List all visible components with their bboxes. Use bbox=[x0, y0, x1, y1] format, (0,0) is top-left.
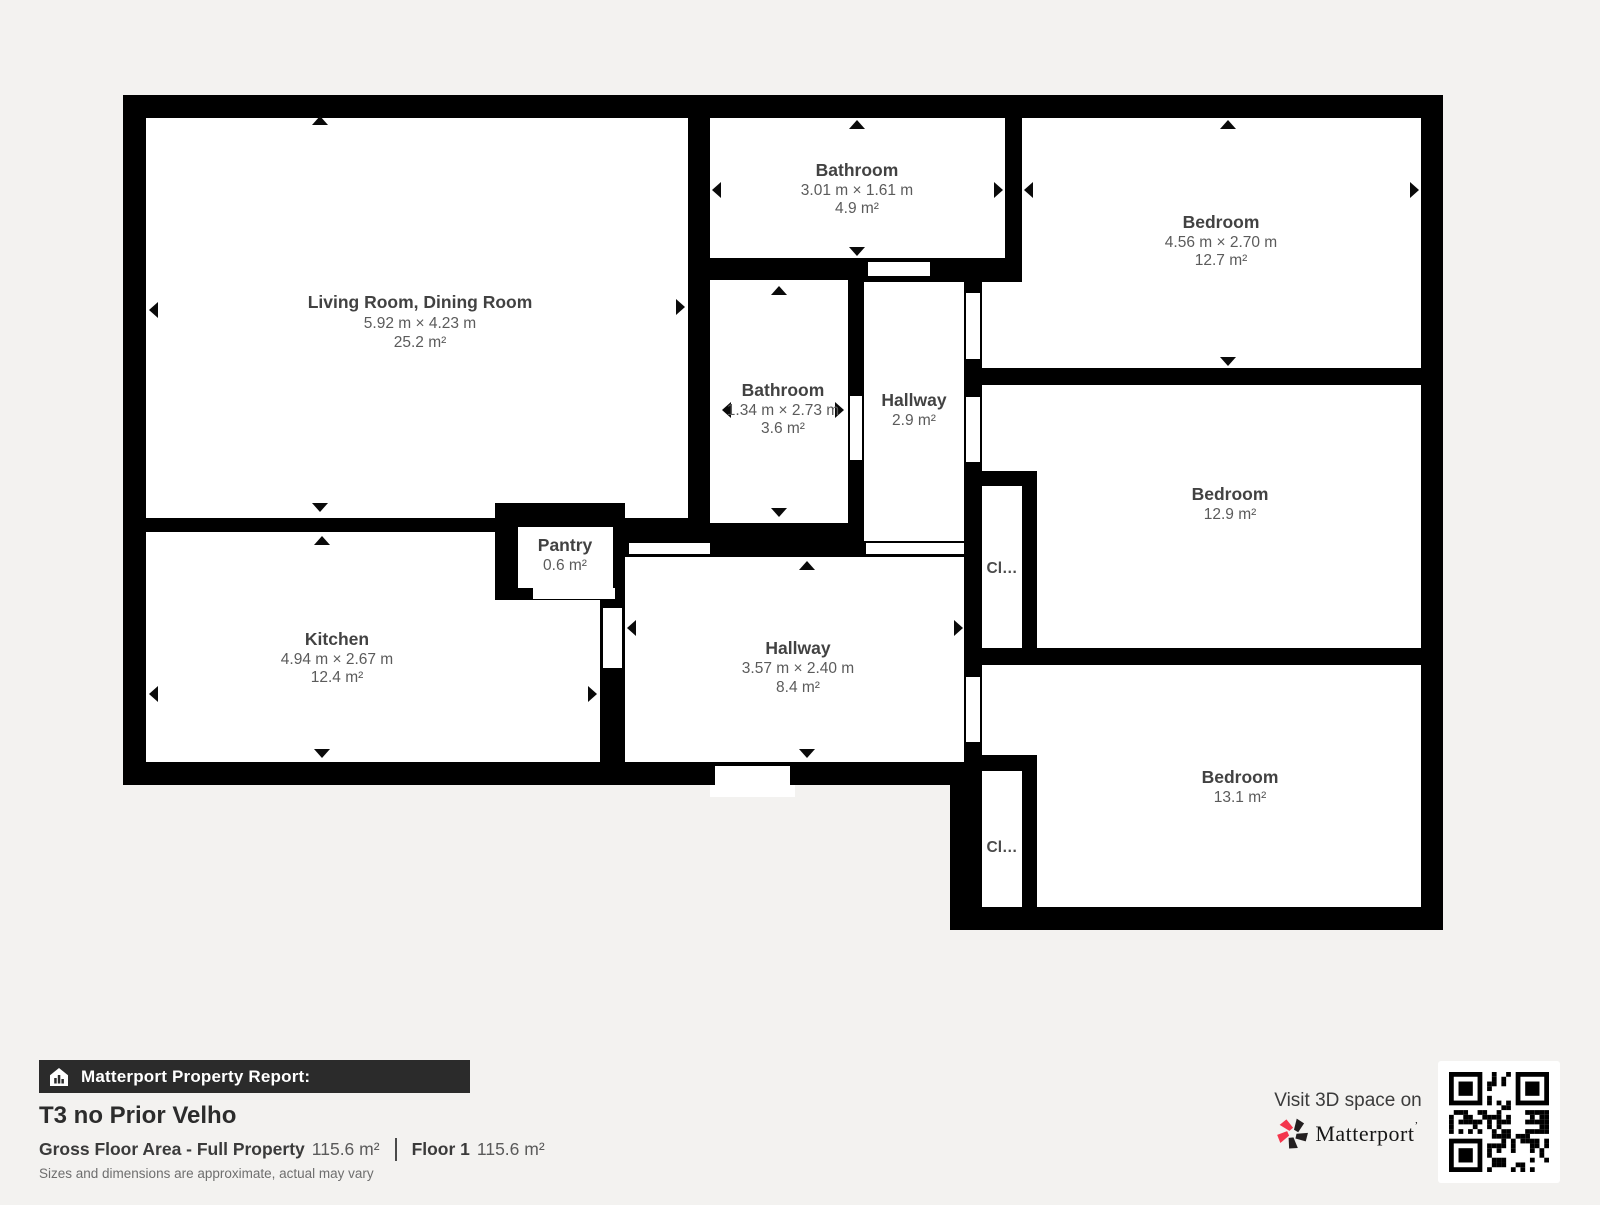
floor-label: Floor 1 bbox=[412, 1139, 470, 1160]
matterport-brand-row: Matterportʼ bbox=[1248, 1118, 1448, 1149]
room-area: 4.9 m² bbox=[835, 200, 879, 217]
room-dims: 4.94 m × 2.67 m bbox=[281, 651, 393, 668]
room-dims: 3.01 m × 1.61 m bbox=[801, 182, 913, 199]
floor-area-stats: Gross Floor Area - Full Property 115.6 m… bbox=[39, 1138, 545, 1161]
room-name: Bedroom bbox=[1192, 484, 1269, 504]
door-hallway-bottom bbox=[715, 766, 790, 785]
label-closet-upper: Cl… bbox=[987, 560, 1018, 577]
matterport-pinwheel-icon bbox=[1277, 1118, 1308, 1149]
room-dims: 1.34 m × 2.73 m bbox=[727, 402, 839, 419]
room-area: 3.6 m² bbox=[761, 420, 805, 437]
visit-3d-text: Visit 3D space on bbox=[1248, 1090, 1448, 1112]
door-pantry bbox=[533, 588, 615, 599]
room-dims: 4.56 m × 2.70 m bbox=[1165, 234, 1277, 251]
room-area: 25.2 m² bbox=[394, 334, 447, 351]
room-name: Bedroom bbox=[1202, 767, 1279, 787]
label-closet-lower: Cl… bbox=[987, 839, 1018, 856]
room-name: Hallway bbox=[765, 638, 830, 658]
door-bedroom-top-right bbox=[966, 293, 980, 359]
room-bedroom-middle-right bbox=[982, 385, 1421, 648]
room-area: 8.4 m² bbox=[776, 679, 820, 696]
property-title: T3 no Prior Velho bbox=[39, 1102, 236, 1130]
door-bedroom-middle-right bbox=[966, 397, 980, 462]
visit-3d-block: Visit 3D space on Matterportʼ bbox=[1248, 1090, 1448, 1149]
room-name: Bathroom bbox=[742, 380, 825, 400]
room-area: 0.6 m² bbox=[543, 557, 587, 574]
closet-upper-wall-right bbox=[1022, 471, 1037, 648]
report-bar-label: Matterport Property Report: bbox=[81, 1067, 310, 1087]
room-name: Kitchen bbox=[305, 629, 369, 649]
room-bedroom-top-right-nook bbox=[982, 282, 1022, 368]
stats-divider bbox=[395, 1138, 397, 1161]
room-dims: 3.57 m × 2.40 m bbox=[742, 660, 854, 677]
qr-code bbox=[1449, 1072, 1549, 1172]
room-name: Hallway bbox=[881, 390, 946, 410]
door-bathroom-top bbox=[868, 262, 930, 276]
door-bedroom-bottom-right bbox=[966, 677, 980, 742]
door-bathroom-middle bbox=[850, 396, 862, 460]
room-name: Living Room, Dining Room bbox=[308, 292, 533, 312]
room-name: Bedroom bbox=[1183, 212, 1260, 232]
floor-value: 115.6 m² bbox=[477, 1139, 545, 1160]
gross-area-value: 115.6 m² bbox=[312, 1139, 380, 1160]
room-area: 12.7 m² bbox=[1195, 252, 1248, 269]
passage-hallways bbox=[866, 543, 964, 554]
room-area: 2.9 m² bbox=[892, 412, 936, 429]
closet-lower-wall-right bbox=[1022, 755, 1037, 907]
label-pantry: Pantry 0.6 m² bbox=[538, 535, 593, 574]
matterport-wordmark: Matterportʼ bbox=[1315, 1121, 1418, 1147]
brand-trademark: ʼ bbox=[1414, 1120, 1418, 1132]
matterport-floorplan-page: Living Room, Dining Room 5.92 m × 4.23 m… bbox=[0, 0, 1600, 1200]
room-name: Bathroom bbox=[816, 160, 899, 180]
house-chart-icon bbox=[49, 1067, 69, 1087]
floor-plan: Living Room, Dining Room 5.92 m × 4.23 m… bbox=[0, 0, 1600, 1200]
room-area: 12.9 m² bbox=[1204, 506, 1257, 523]
report-bar: Matterport Property Report: bbox=[39, 1060, 470, 1093]
disclaimer-text: Sizes and dimensions are approximate, ac… bbox=[39, 1166, 374, 1181]
room-area: 13.1 m² bbox=[1214, 789, 1267, 806]
room-area: 12.4 m² bbox=[311, 669, 364, 686]
qr-card bbox=[1438, 1061, 1560, 1183]
gross-area-label: Gross Floor Area - Full Property bbox=[39, 1139, 305, 1160]
door-living-hallway bbox=[629, 543, 710, 554]
room-dims: 5.92 m × 4.23 m bbox=[364, 315, 476, 332]
door-hallway-bottom-tab bbox=[710, 785, 795, 797]
door-kitchen bbox=[603, 608, 622, 668]
room-name: Pantry bbox=[538, 535, 593, 555]
